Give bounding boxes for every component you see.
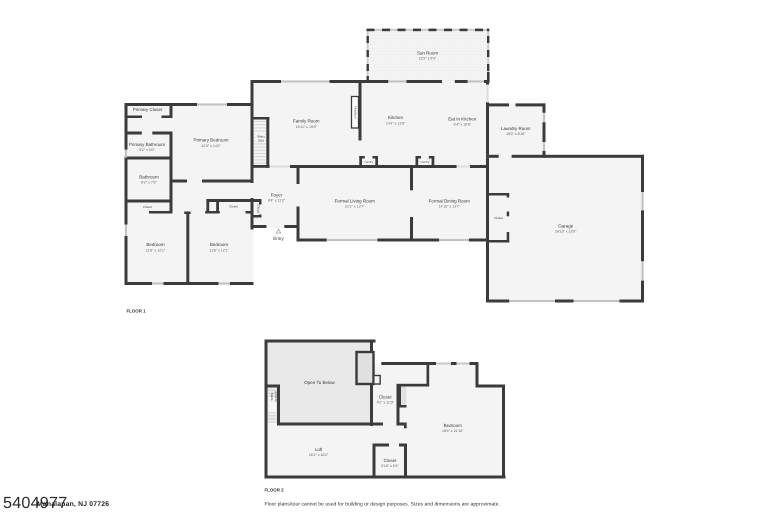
svg-text:14'4" x 13'0": 14'4" x 13'0" <box>386 121 406 125</box>
svg-text:4'2" x 11'0": 4'2" x 11'0" <box>377 400 395 404</box>
svg-text:9'4" x 11'2": 9'4" x 11'2" <box>268 199 286 203</box>
svg-text:5'10" x 6'4": 5'10" x 6'4" <box>381 464 399 468</box>
svg-text:Primary Bedroom: Primary Bedroom <box>193 138 228 143</box>
svg-text:Closet: Closet <box>384 458 398 463</box>
svg-text:22'0" x 14'2": 22'0" x 14'2" <box>201 144 221 148</box>
svg-text:9'2" x 5'0": 9'2" x 5'0" <box>139 148 155 152</box>
svg-text:8'2" x 7'9": 8'2" x 7'9" <box>141 181 157 185</box>
svg-text:Kitchen: Kitchen <box>388 115 404 120</box>
svg-text:Family Room: Family Room <box>293 119 320 124</box>
svg-text:Laundry Room: Laundry Room <box>501 126 531 131</box>
svg-text:Loft: Loft <box>315 447 323 452</box>
svg-text:Formal Living Room: Formal Living Room <box>335 198 376 203</box>
svg-text:Open To Below: Open To Below <box>304 380 335 385</box>
svg-text:Closet: Closet <box>229 205 238 209</box>
svg-text:Entry: Entry <box>273 236 284 241</box>
svg-text:16'11" x 15'6": 16'11" x 15'6" <box>296 125 318 129</box>
svg-text:Bathroom: Bathroom <box>139 175 159 180</box>
svg-text:19'4" x 21'10": 19'4" x 21'10" <box>442 429 464 433</box>
svg-text:11'8" x 12'1": 11'8" x 12'1" <box>146 248 166 252</box>
svg-text:Floor plans/tour cannot be use: Floor plans/tour cannot be used for buil… <box>265 501 501 507</box>
svg-text:Closet: Closet <box>143 205 152 209</box>
svg-text:22'2" x 9'4": 22'2" x 9'4" <box>419 57 437 61</box>
svg-text:Bedroom: Bedroom <box>444 423 463 428</box>
svg-text:Primary Bathroom: Primary Bathroom <box>129 142 166 147</box>
svg-text:14'10" x 13'7": 14'10" x 13'7" <box>439 205 461 209</box>
svg-text:Pantry: Pantry <box>364 160 373 164</box>
svg-text:Sun Room: Sun Room <box>417 51 439 56</box>
svg-text:Bedroom: Bedroom <box>146 242 165 247</box>
svg-text:Garage: Garage <box>558 223 574 228</box>
svg-text:11'6" x 12'1": 11'6" x 12'1" <box>209 248 229 252</box>
svg-text:Manalapan, NJ 07726: Manalapan, NJ 07726 <box>37 501 109 508</box>
svg-text:Fireplace: Fireplace <box>353 106 357 119</box>
svg-text:21'1" x 13'7": 21'1" x 13'7" <box>345 205 365 209</box>
svg-text:Pantry: Pantry <box>421 160 430 164</box>
svg-text:Closet: Closet <box>494 216 503 220</box>
svg-text:Foyer: Foyer <box>271 193 283 198</box>
svg-text:Bedroom: Bedroom <box>210 242 229 247</box>
svg-text:(Down): (Down) <box>274 392 278 402</box>
svg-text:Formal Dining Room: Formal Dining Room <box>429 198 471 203</box>
svg-text:(Up): (Up) <box>258 139 264 143</box>
svg-text:FLOOR 1: FLOOR 1 <box>127 308 147 313</box>
svg-text:FLOOR 2: FLOOR 2 <box>265 488 285 493</box>
svg-text:Closet: Closet <box>257 205 261 214</box>
svg-text:Primary Closet: Primary Closet <box>133 107 163 112</box>
svg-text:Closet: Closet <box>379 394 393 399</box>
svg-text:9'4" x 10'8": 9'4" x 10'8" <box>454 122 472 126</box>
svg-text:Stairs: Stairs <box>270 393 274 401</box>
svg-text:26'1" x 10'2": 26'1" x 10'2" <box>309 453 329 457</box>
svg-text:Eat In Kitchen: Eat In Kitchen <box>448 116 477 121</box>
svg-text:10'0" x 8'10": 10'0" x 8'10" <box>506 132 526 136</box>
svg-text:26'10" x 23'0": 26'10" x 23'0" <box>555 230 577 234</box>
